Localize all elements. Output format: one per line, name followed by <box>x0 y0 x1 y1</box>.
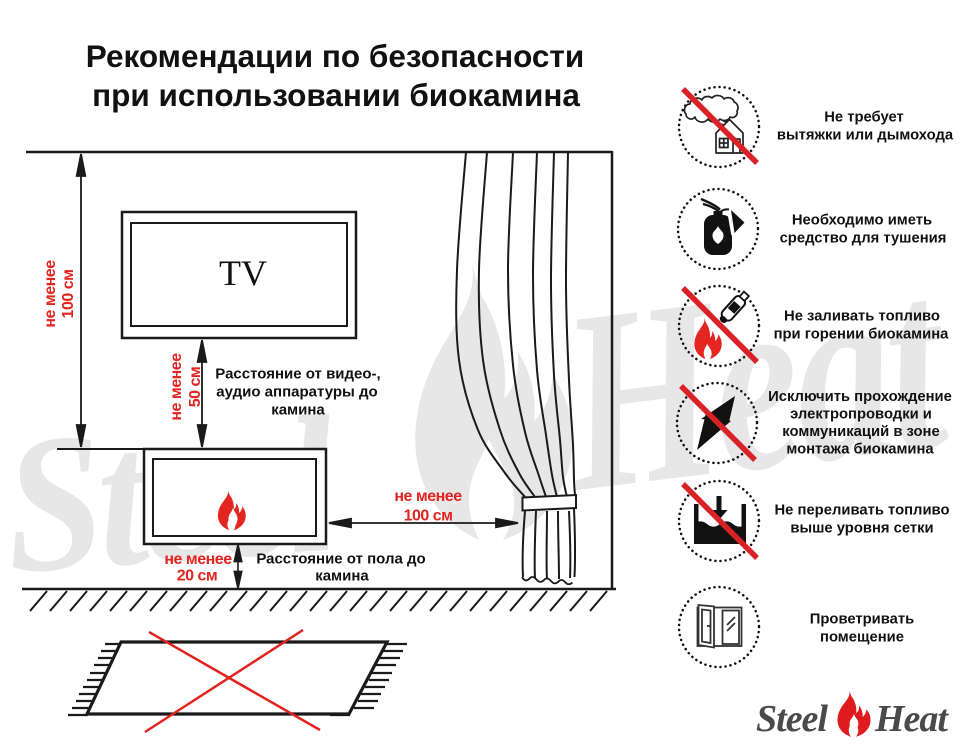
svg-text:100 см: 100 см <box>60 270 77 319</box>
svg-text:при горении биокамина: при горении биокамина <box>774 327 950 343</box>
svg-text:электропроводки и: электропроводки и <box>790 407 932 423</box>
svg-text:аудио аппаратуры до: аудио аппаратуры до <box>216 384 377 401</box>
svg-text:Рекомендации по безопасности: Рекомендации по безопасности <box>86 38 584 74</box>
svg-text:Расстояние от пола до: Расстояние от пола до <box>256 551 425 568</box>
svg-text:Не заливать топливо: Не заливать топливо <box>784 309 940 325</box>
svg-text:100 см: 100 см <box>404 508 453 525</box>
svg-text:выше уровня сетки: выше уровня сетки <box>790 521 933 537</box>
svg-text:камина: камина <box>315 568 369 585</box>
svg-text:при использовании биокамина: при использовании биокамина <box>92 77 580 113</box>
svg-text:коммуникаций в зоне: коммуникаций в зоне <box>782 424 939 440</box>
svg-text:не менее: не менее <box>42 260 59 328</box>
svg-text:Steel: Steel <box>756 698 828 740</box>
svg-text:Heat: Heat <box>547 217 962 547</box>
svg-text:средство для тушения: средство для тушения <box>780 231 947 247</box>
svg-text:Исключить прохождение: Исключить прохождение <box>768 389 952 405</box>
svg-text:Не переливать топливо: Не переливать топливо <box>774 503 949 519</box>
svg-text:вытяжки или дымохода: вытяжки или дымохода <box>777 128 954 144</box>
svg-text:помещение: помещение <box>820 630 904 646</box>
svg-text:Расстояние от видео-,: Расстояние от видео-, <box>215 366 380 383</box>
svg-text:Не требует: Не требует <box>824 110 904 126</box>
svg-text:не менее: не менее <box>164 551 232 568</box>
svg-text:не менее: не менее <box>168 353 185 421</box>
svg-text:камина: камина <box>271 402 325 419</box>
svg-text:Необходимо иметь: Необходимо иметь <box>792 213 932 229</box>
svg-text:монтажа биокамина: монтажа биокамина <box>786 442 934 458</box>
svg-text:TV: TV <box>219 253 267 293</box>
svg-text:Heat: Heat <box>874 698 949 740</box>
svg-text:Проветривать: Проветривать <box>810 612 915 628</box>
svg-text:50 см: 50 см <box>187 367 204 407</box>
svg-text:20 см: 20 см <box>177 568 217 585</box>
svg-text:не менее: не менее <box>394 488 462 505</box>
